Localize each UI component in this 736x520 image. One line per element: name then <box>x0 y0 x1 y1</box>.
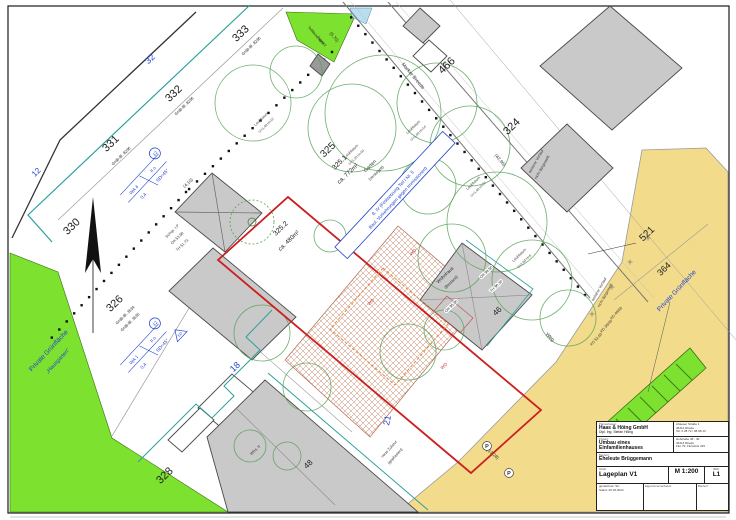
boundary-dot <box>212 165 214 167</box>
boundary-dot <box>177 199 179 201</box>
boundary-dot <box>513 210 515 212</box>
boundary-dot <box>228 150 230 152</box>
boundary-dot <box>291 89 293 91</box>
boundary-dot <box>357 25 359 27</box>
boundary-dot <box>204 173 206 175</box>
boundary-dot <box>435 117 437 119</box>
date-label: Stand: <box>599 488 608 492</box>
boundary-dot <box>236 142 238 144</box>
boundary-dot <box>220 157 222 159</box>
boundary-dot <box>364 33 366 35</box>
remarks-label: Bauherr: <box>698 485 727 488</box>
boundary-dot <box>51 336 53 338</box>
boundary-dot <box>527 226 529 228</box>
boundary-dot <box>80 304 82 306</box>
boundary-dot <box>299 81 301 83</box>
boundary-dot <box>449 134 451 136</box>
title-block-row-content: Inhalt: Lageplan V1 M 1:200 Blatt: L1 <box>597 467 728 484</box>
boundary-dot <box>196 180 198 182</box>
title-block-row-architect: Planverfasser: Haas & Höing GmbH Dipl. I… <box>597 422 728 437</box>
title-block-row-project: Projekt: Umbau eines Einfamilienhauses H… <box>597 437 728 453</box>
boundary-dot <box>58 328 60 330</box>
boundary-dot <box>371 41 373 43</box>
boundary-dot <box>307 74 309 76</box>
boundary-dot <box>125 256 127 258</box>
boundary-dot <box>506 201 508 203</box>
boundary-dot <box>577 285 579 287</box>
boundary-dot <box>463 151 465 153</box>
boundary-dot <box>428 109 430 111</box>
boundary-dot <box>385 58 387 60</box>
boundary-dot <box>407 83 409 85</box>
boundary-dot <box>103 280 105 282</box>
boundary-dot <box>133 247 135 249</box>
boundary-dot <box>456 142 458 144</box>
title-block: Planverfasser: Haas & Höing GmbH Dipl. I… <box>596 421 729 511</box>
boundary-dot <box>251 127 253 129</box>
boundary-dot <box>470 159 472 161</box>
boundary-dot <box>95 288 97 290</box>
project-address-line: Flur 79, Flurstück 325 <box>676 445 726 449</box>
owner-label: Eigentümernachweis: <box>645 485 695 488</box>
boundary-dot <box>414 92 416 94</box>
boundary-dot <box>110 272 112 274</box>
boundary-dot <box>73 312 75 314</box>
boundary-dot <box>442 126 444 128</box>
boundary-dot <box>392 67 394 69</box>
project-name: Umbau eines Einfamilienhauses <box>599 441 671 452</box>
boundary-dot <box>162 215 164 217</box>
architect-sub: Dipl. Ing. Stefan Höing <box>599 431 671 435</box>
boundary-dot <box>421 100 423 102</box>
parking-letter: P <box>485 444 489 450</box>
boundary-dot <box>520 218 522 220</box>
site-plan-page: ß. IV (Festsetzung Teil I Nr. 5Baul. Vor… <box>0 0 736 520</box>
boundary-dot <box>118 264 120 266</box>
boundary-dot <box>155 223 157 225</box>
boundary-dot <box>534 235 536 237</box>
parking-symbol: P <box>483 442 492 451</box>
parking-letter: P <box>507 471 511 477</box>
scale-value: M 1:200 <box>670 468 703 475</box>
label-21: 21 <box>381 414 393 426</box>
boundary-dot <box>499 193 501 195</box>
date-value: 26.03.2024 <box>609 488 624 492</box>
parking-symbol: P <box>505 469 514 478</box>
boundary-dot <box>478 168 480 170</box>
boundary-dot <box>492 184 494 186</box>
boundary-dot <box>275 104 277 106</box>
boundary-dot <box>148 231 150 233</box>
boundary-dot <box>350 16 352 18</box>
boundary-dot <box>188 188 190 190</box>
boundary-dot <box>400 75 402 77</box>
boundary-dot <box>185 191 187 193</box>
drawing-title: Lageplan V1 <box>599 471 666 478</box>
boundary-dot <box>563 269 565 271</box>
boundary-dot <box>140 239 142 241</box>
sheet-number: L1 <box>706 471 727 478</box>
boundary-dot <box>331 51 333 53</box>
boundary-dot <box>170 207 172 209</box>
boundary-dot <box>378 50 380 52</box>
title-block-row-client: Bauherr: Eheleute Brüggemann <box>597 453 728 467</box>
boundary-dot <box>243 135 245 137</box>
title-block-row-meta: gezeichnet: SC Stand: 26.03.2024 Eigentü… <box>597 484 728 510</box>
boundary-dot <box>88 296 90 298</box>
boundary-dot <box>283 96 285 98</box>
boundary-dot <box>66 320 68 322</box>
architect-address-line: Tel. 0 28 72 / 98 98 13 <box>676 430 726 434</box>
client-name: Eheleute Brüggemann <box>599 457 726 462</box>
boundary-dot <box>548 252 550 254</box>
boundary-dot <box>485 176 487 178</box>
boundary-dot <box>555 260 557 262</box>
